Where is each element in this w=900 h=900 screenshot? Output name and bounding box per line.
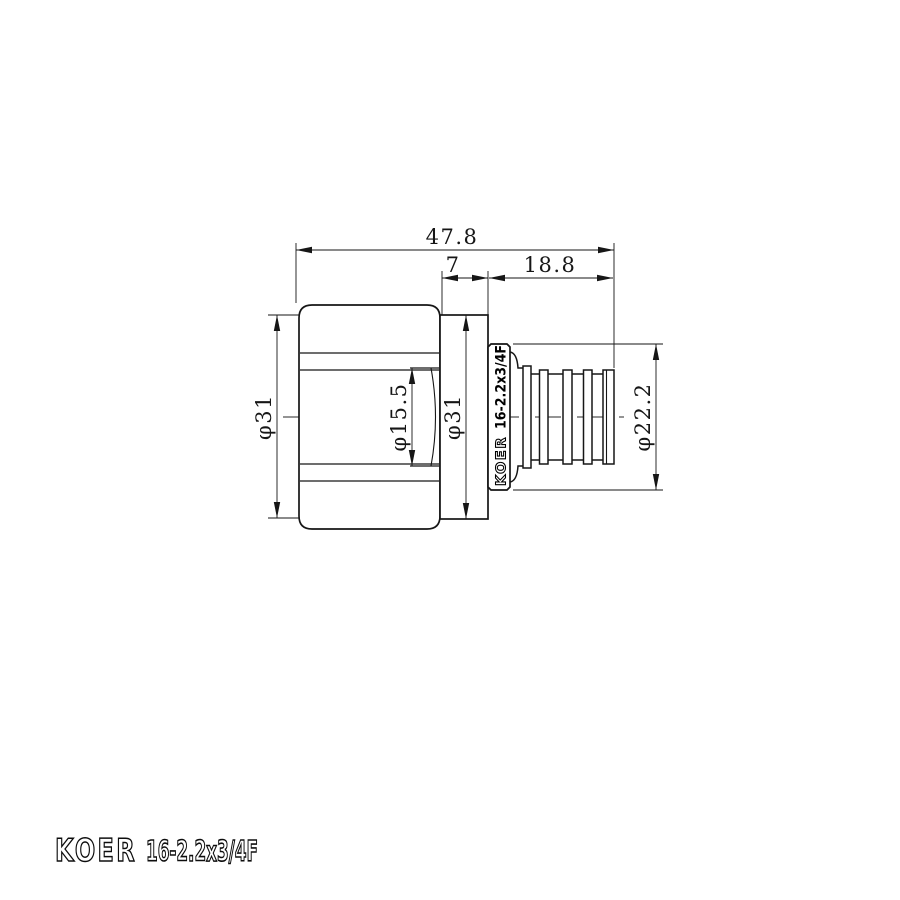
arrowhead (274, 315, 280, 331)
dim-bore-diameter: φ15.5 (387, 368, 415, 466)
dim-hex-diameter: φ31 (252, 315, 299, 518)
arrowhead (653, 344, 659, 360)
barb-end-cap (603, 370, 614, 464)
barb-rib (584, 370, 593, 464)
footer-logo: KOER 16-2.2x3/4F (55, 833, 258, 869)
dim-bore-diameter-label: φ15.5 (387, 383, 411, 452)
arrowhead (489, 275, 505, 281)
dim-barb-length: 18.8 (489, 253, 613, 281)
collar-brand-text: KOER (494, 436, 510, 486)
arrowhead (472, 275, 488, 281)
dim-overall-length-label: 47.8 (426, 225, 479, 249)
barb-rib (563, 370, 572, 464)
dim-collar-offset-label: 7 (446, 253, 461, 277)
hex-outline (299, 305, 440, 529)
collar-ring: KOER 16-2.2x3/4F (488, 344, 510, 490)
brand-logo-text: KOER (55, 833, 137, 869)
collar-model-text: 16-2.2x3/4F (494, 345, 510, 429)
hex-body (299, 305, 440, 529)
arrowhead (653, 474, 659, 490)
dim-collar-diameter-label: φ22.2 (631, 383, 655, 452)
arrowhead (274, 502, 280, 518)
arrowhead (296, 247, 312, 253)
dim-hex-diameter-label: φ31 (252, 394, 276, 440)
barb-rib (540, 370, 549, 464)
arrowhead (598, 247, 614, 253)
model-number-text: 16-2.2x3/4F (146, 835, 258, 868)
drawing-page: KOER 16-2.2x3/4F 47.8 7 18.8 φ31 (0, 0, 900, 900)
dim-body-diameter-label: φ31 (441, 394, 465, 440)
technical-drawing-canvas: KOER 16-2.2x3/4F 47.8 7 18.8 φ31 (0, 0, 900, 900)
arrowhead (597, 275, 613, 281)
barb-first-ridge (523, 366, 531, 468)
dim-barb-length-label: 18.8 (524, 253, 577, 277)
